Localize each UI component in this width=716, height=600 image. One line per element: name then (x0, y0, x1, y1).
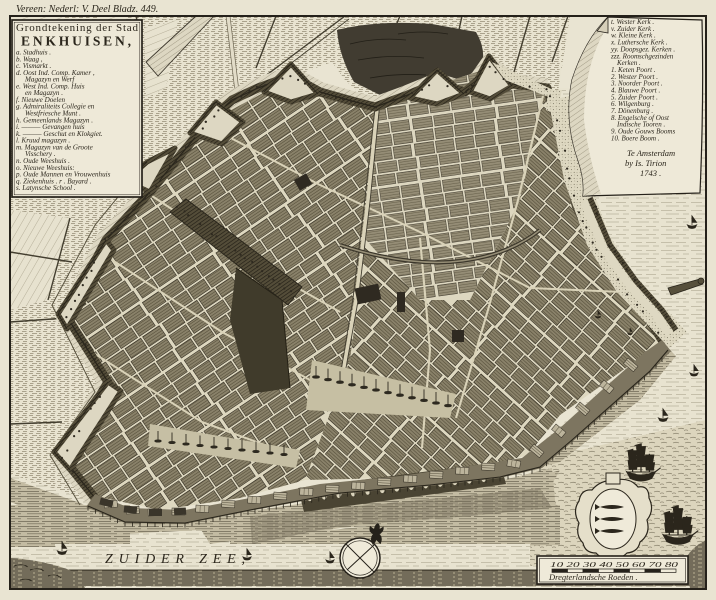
svg-text:Te Amsterdam: Te Amsterdam (627, 148, 675, 158)
svg-text:10 20 30 40 50 60 70 80: 10 20 30 40 50 60 70 80 (550, 561, 679, 569)
svg-text:s. Latynsche School .: s. Latynsche School . (16, 184, 76, 192)
svg-text:Vereen: Nederl: V. Deel Bladz.: Vereen: Nederl: V. Deel Bladz. 449. (16, 4, 158, 15)
svg-text:10. Boere Boom .: 10. Boere Boom . (611, 134, 660, 142)
svg-text:by Is. Tirion: by Is. Tirion (625, 158, 666, 168)
svg-text:ENKHUISEN,: ENKHUISEN, (21, 34, 131, 49)
svg-text:Grondtekening der Stad: Grondtekening der Stad (16, 22, 139, 34)
svg-text:Dregterlandsche Roeden .: Dregterlandsche Roeden . (548, 572, 638, 582)
svg-text:1743 .: 1743 . (640, 168, 661, 178)
